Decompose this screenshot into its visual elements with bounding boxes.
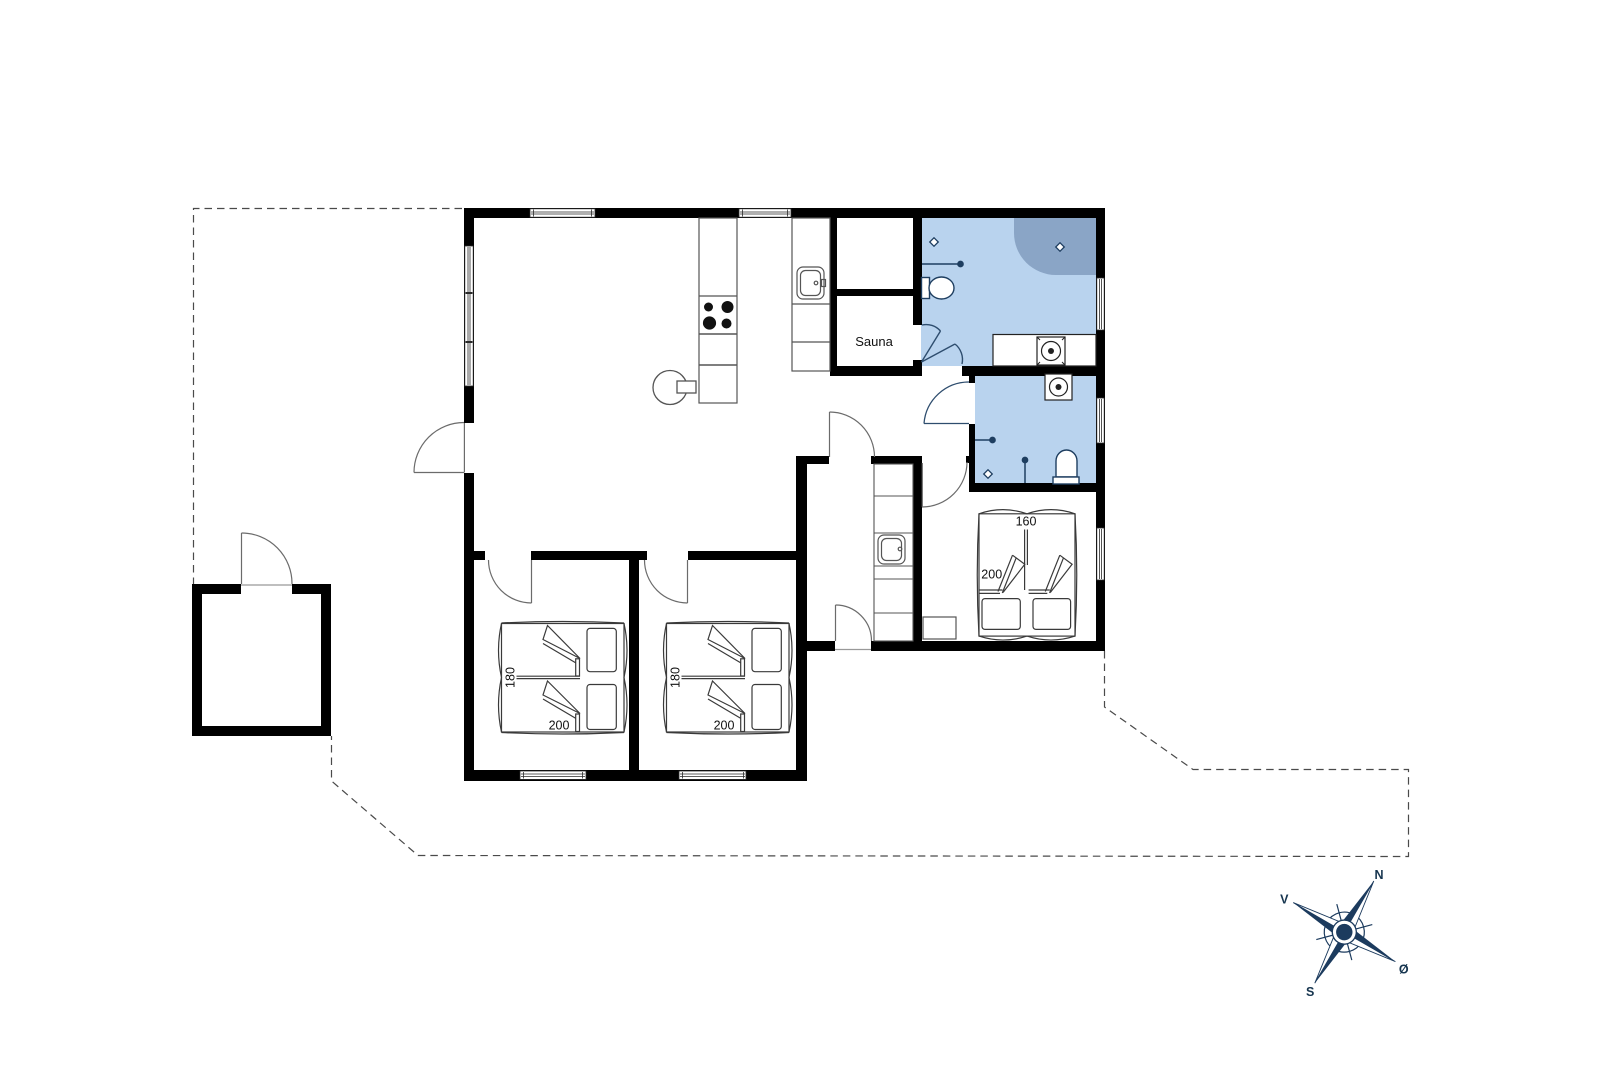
svg-text:200: 200 — [714, 719, 735, 733]
svg-text:180: 180 — [504, 667, 518, 688]
svg-text:200: 200 — [981, 567, 1002, 581]
svg-text:Sauna: Sauna — [855, 334, 893, 349]
svg-text:160: 160 — [1016, 515, 1037, 529]
svg-text:N: N — [1374, 868, 1383, 882]
svg-text:S: S — [1306, 985, 1314, 999]
svg-text:180: 180 — [669, 667, 683, 688]
svg-text:200: 200 — [549, 719, 570, 733]
svg-text:V: V — [1280, 893, 1289, 907]
svg-text:Ø: Ø — [1399, 962, 1409, 976]
